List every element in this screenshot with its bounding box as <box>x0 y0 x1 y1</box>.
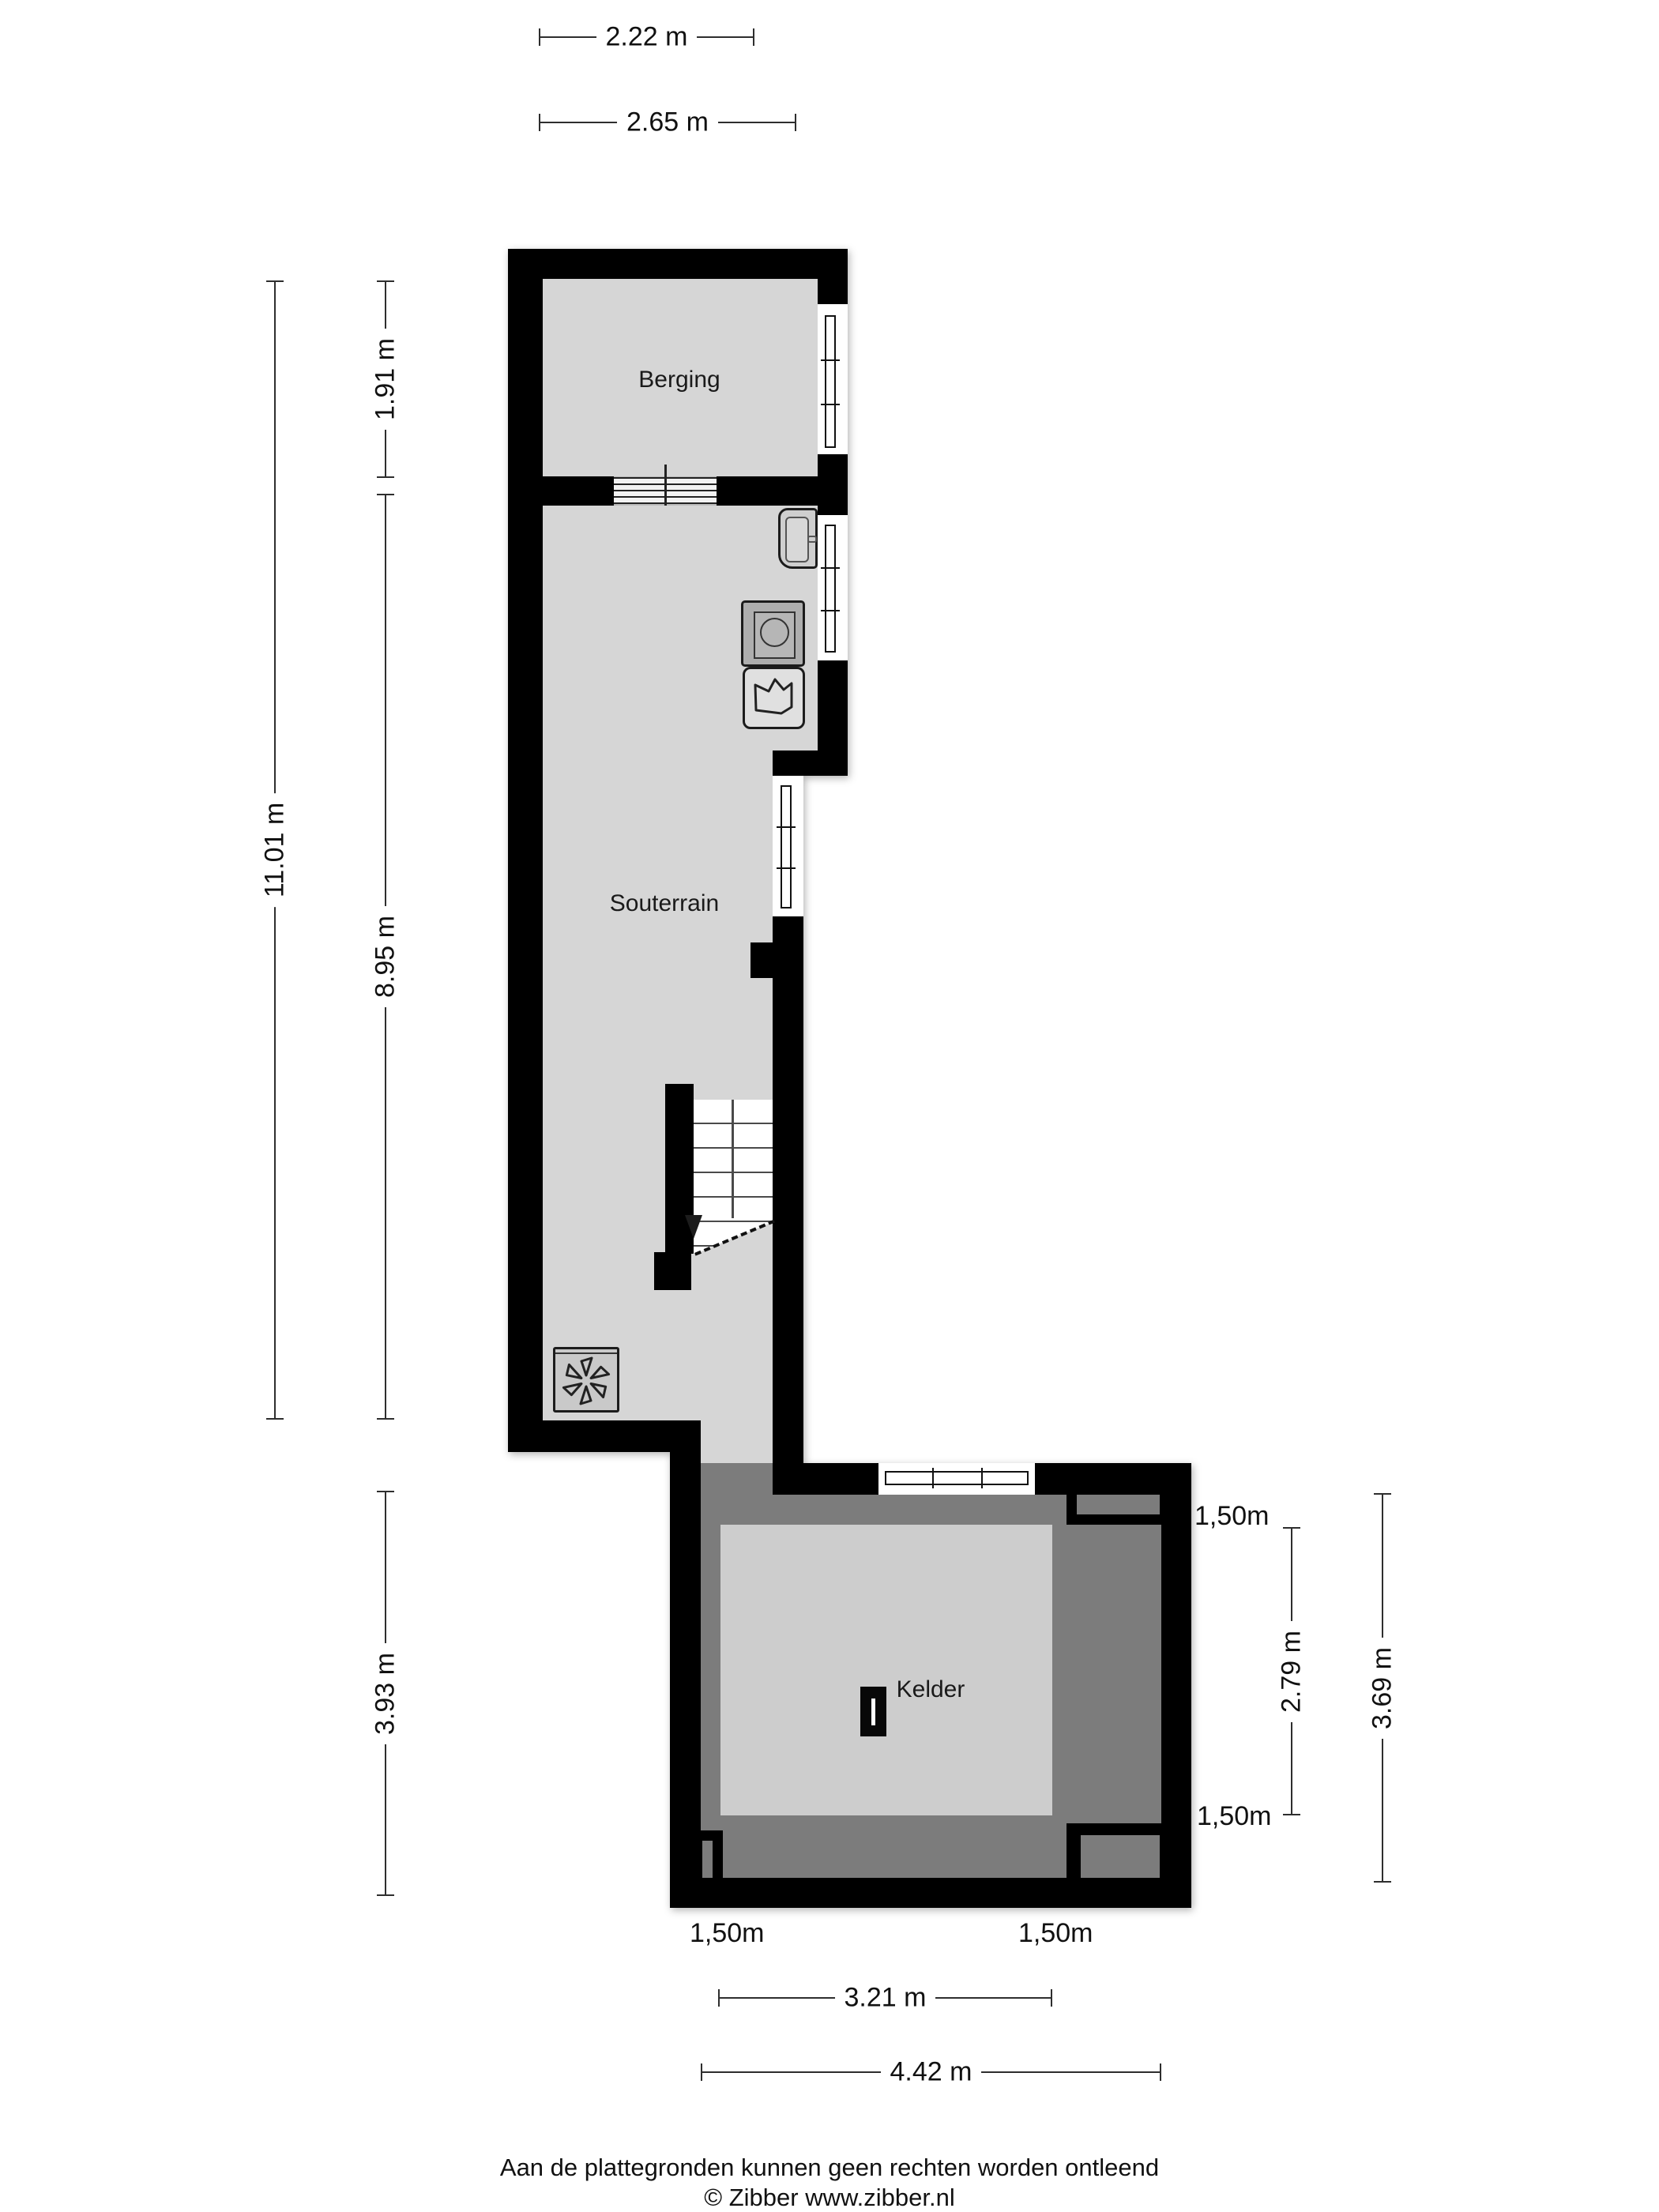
dimension-label: 2.22 m <box>596 21 698 55</box>
kelder-label: Kelder <box>852 1676 1010 1703</box>
sink-icon <box>778 508 818 569</box>
laundry-basket-icon <box>743 667 805 729</box>
dimension-left-berging: 1.91 m <box>371 280 400 478</box>
disclaimer-text: Aan de plattegronden kunnen geen rechten… <box>0 2154 1659 2182</box>
dimension-label: 8.95 m <box>369 906 403 1007</box>
dimension-bottom-inner: 3.21 m <box>718 1984 1052 2013</box>
kelder-floor <box>720 1525 1052 1815</box>
dimension-top-1: 2.22 m <box>539 24 754 52</box>
dimension-right-outer: 3.69 m <box>1368 1493 1397 1883</box>
kelder-wall-top-left <box>773 1463 878 1495</box>
dimension-right-inner: 2.79 m <box>1277 1527 1306 1815</box>
corridor-floor <box>701 1420 773 1465</box>
wall-top <box>508 249 848 279</box>
dimension-label: 2.79 m <box>1275 1621 1309 1722</box>
staircase-center-line <box>732 1100 734 1218</box>
dimension-label: 3.93 m <box>369 1643 403 1744</box>
headroom-label-right-bottom: 1,50m <box>1197 1801 1272 1832</box>
kelder-wall-right <box>1161 1463 1191 1908</box>
wall-right-seg1 <box>818 249 848 310</box>
dimension-left-kelder: 3.93 m <box>371 1491 400 1896</box>
berging-window-icon <box>825 315 836 448</box>
wall-right-seg4 <box>773 916 803 1495</box>
stairwell-wall-foot <box>654 1252 691 1290</box>
wall-pilaster <box>750 942 773 978</box>
ventilation-fan-icon <box>553 1347 619 1413</box>
berging-label: Berging <box>600 367 758 393</box>
kelder-window-icon <box>885 1471 1029 1485</box>
kelder-niche-left <box>702 1841 713 1878</box>
headroom-label-bottom-right: 1,50m <box>1018 1918 1093 1949</box>
kelder-wall-left <box>670 1452 701 1908</box>
floorplan-page: Berging Souterrain Kelder 2.22 m 2.65 m … <box>0 0 1659 2212</box>
wall-right-seg2 <box>818 453 848 523</box>
dimension-label: 3.69 m <box>1366 1638 1400 1739</box>
souterrain-floor-lower <box>543 750 773 1420</box>
floorplan-drawing <box>0 0 1659 2212</box>
wall-left <box>508 249 543 1452</box>
washing-machine-icon <box>741 600 805 667</box>
wall-berging-bottom-left <box>508 476 614 506</box>
wall-right-step <box>773 750 848 776</box>
kelder-niche-top <box>1077 1495 1160 1514</box>
headroom-label-right-top: 1,50m <box>1194 1501 1270 1532</box>
dimension-label: 1.91 m <box>369 329 403 430</box>
stairs-down-arrow-icon <box>685 1215 702 1239</box>
dimension-label: 11.01 m <box>258 793 292 907</box>
souterrain-window1-icon <box>825 525 836 653</box>
headroom-label-bottom-left: 1,50m <box>690 1918 765 1949</box>
dimension-label: 3.21 m <box>835 1981 936 2015</box>
copyright-text: © Zibber www.zibber.nl <box>0 2184 1659 2212</box>
steps-divider <box>664 465 667 506</box>
souterrain-window2-icon <box>781 785 792 908</box>
dimension-top-2: 2.65 m <box>539 109 796 137</box>
wall-souterrain-bottom <box>508 1420 701 1452</box>
kelder-niche-bottom <box>1081 1835 1160 1878</box>
souterrain-label: Souterrain <box>566 890 763 917</box>
kelder-wall-bottom <box>670 1878 1191 1908</box>
dimension-bottom-outer: 4.42 m <box>701 2059 1161 2087</box>
dimension-left-total: 11.01 m <box>261 280 289 1420</box>
dimension-label: 4.42 m <box>881 2056 982 2090</box>
dimension-left-souterrain: 8.95 m <box>371 494 400 1420</box>
dimension-label: 2.65 m <box>617 106 718 140</box>
wall-berging-bottom-right <box>717 476 818 506</box>
